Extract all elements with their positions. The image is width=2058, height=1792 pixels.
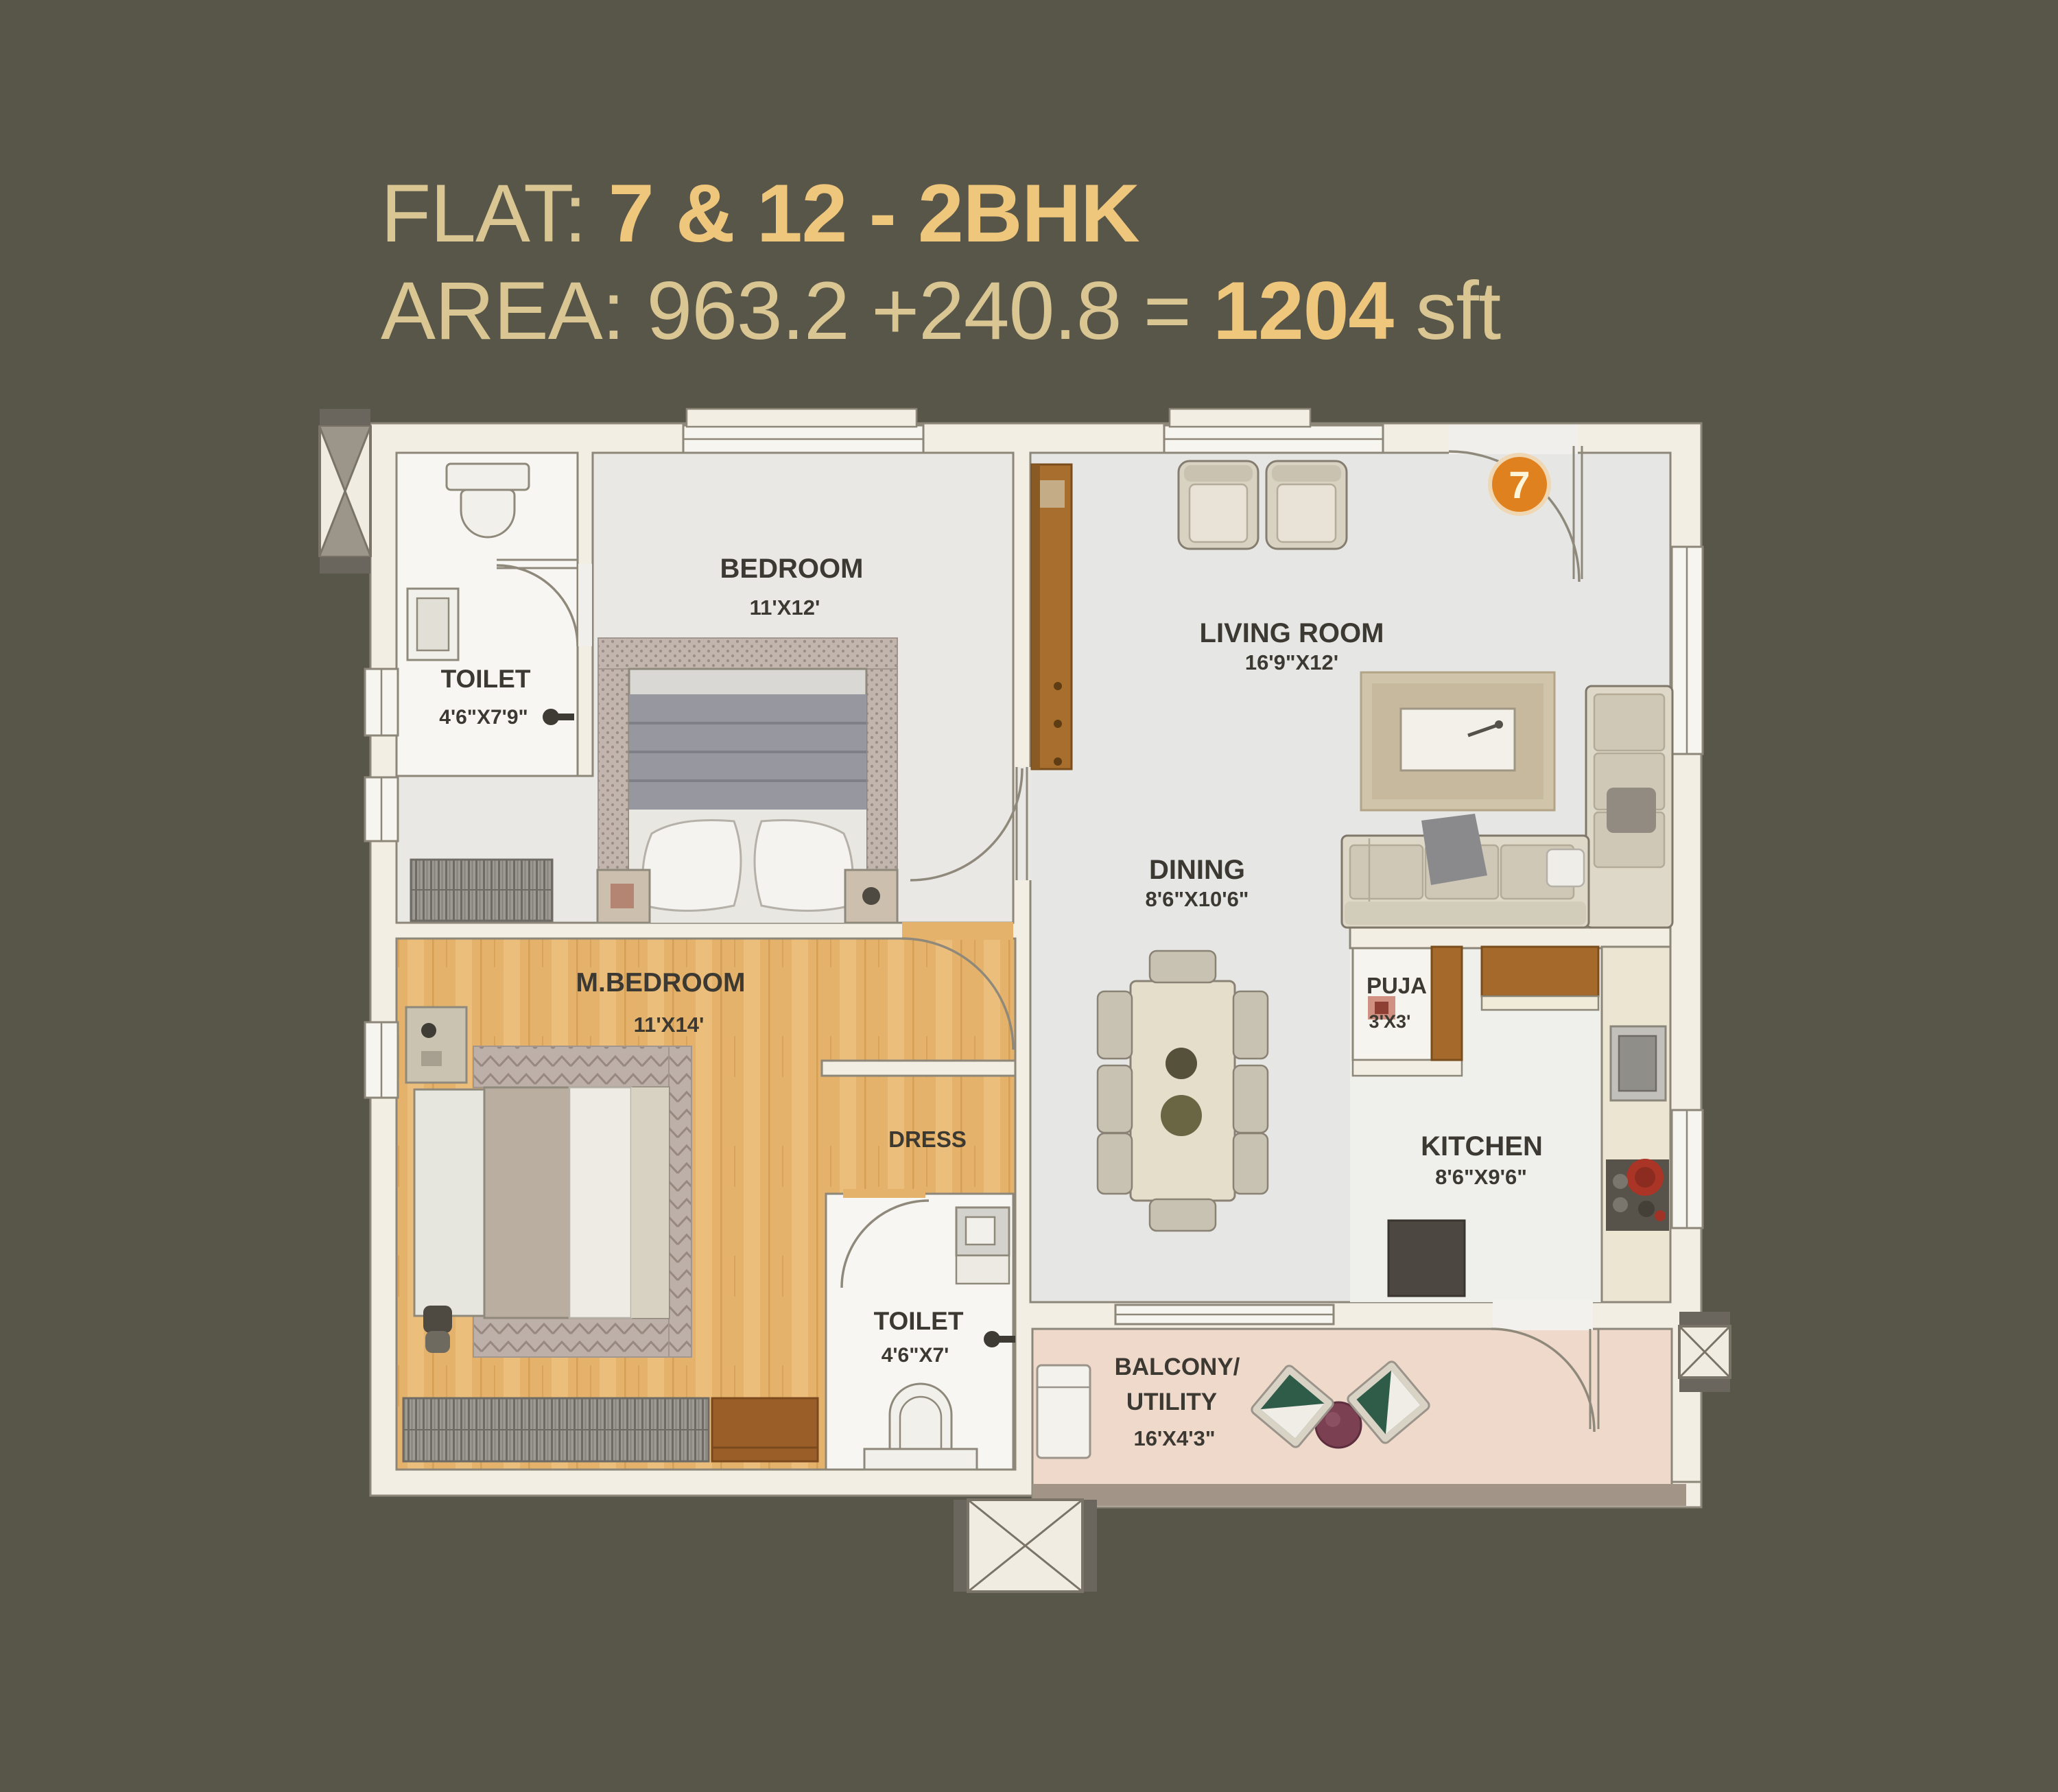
svg-text:TOILET: TOILET [441,665,531,693]
svg-text:8'6"X10'6": 8'6"X10'6" [1145,887,1249,911]
svg-text:DRESS: DRESS [888,1127,967,1152]
svg-text:LIVING ROOM: LIVING ROOM [1200,618,1384,648]
svg-text:PUJA: PUJA [1367,973,1427,998]
svg-text:KITCHEN: KITCHEN [1421,1131,1543,1162]
svg-text:DINING: DINING [1149,855,1245,885]
svg-text:TOILET: TOILET [874,1307,964,1335]
svg-text:7: 7 [1509,463,1530,506]
svg-text:16'X4'3": 16'X4'3" [1133,1426,1215,1450]
svg-text:11'X12': 11'X12' [750,596,820,620]
svg-text:BALCONY/: BALCONY/ [1115,1354,1240,1380]
svg-text:3'X3': 3'X3' [1369,1011,1411,1032]
svg-text:M.BEDROOM: M.BEDROOM [576,968,746,998]
svg-text:BEDROOM: BEDROOM [720,554,864,584]
svg-text:FLAT: 7 & 12 - 2BHK: FLAT: 7 & 12 - 2BHK [381,167,1139,259]
svg-text:AREA: 963.2 +240.8 = 1204 sft: AREA: 963.2 +240.8 = 1204 sft [381,265,1501,357]
svg-text:4'6"X7'9": 4'6"X7'9" [439,706,528,729]
svg-text:16'9"X12': 16'9"X12' [1245,650,1338,674]
svg-text:11'X14': 11'X14' [634,1013,705,1037]
svg-text:UTILITY: UTILITY [1126,1389,1217,1415]
svg-text:4'6"X7': 4'6"X7' [882,1344,949,1367]
svg-text:8'6"X9'6": 8'6"X9'6" [1435,1165,1527,1189]
